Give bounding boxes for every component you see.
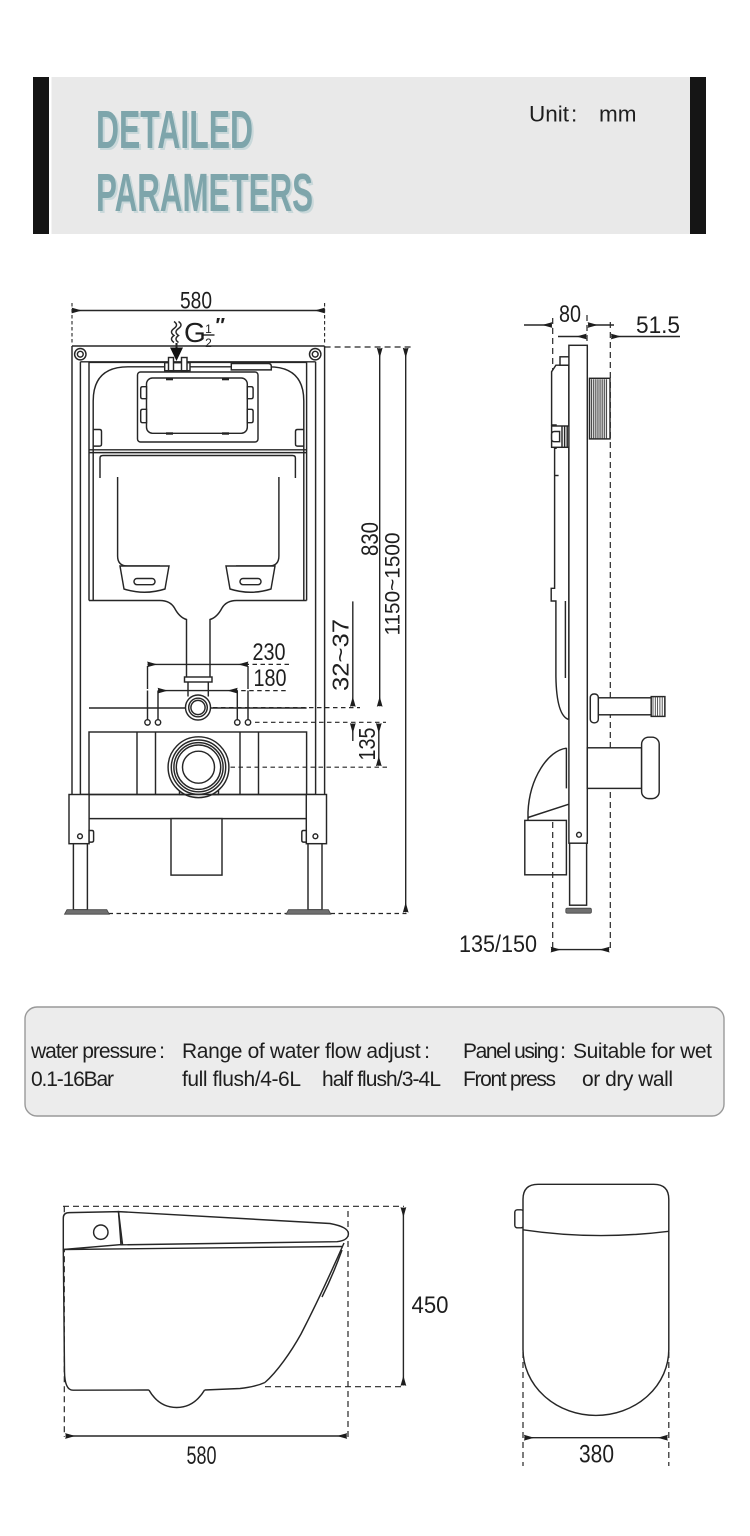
svg-text:32~37: 32~37 — [328, 619, 354, 691]
svg-text:230: 230 — [253, 639, 286, 666]
svg-text:580: 580 — [187, 1442, 217, 1470]
svg-text:450: 450 — [412, 1292, 449, 1319]
svg-text:830: 830 — [357, 522, 384, 556]
svg-text:135: 135 — [354, 728, 380, 761]
svg-text:Range of water flow adjust :: Range of water flow adjust : — [182, 1040, 430, 1063]
svg-text:or dry wall: or dry wall — [582, 1068, 673, 1091]
svg-text:135/150: 135/150 — [459, 931, 537, 958]
svg-text:Panel using :: Panel using : — [463, 1040, 566, 1063]
svg-text:1150~1500: 1150~1500 — [382, 533, 405, 636]
svg-text:51.5: 51.5 — [636, 312, 680, 339]
svg-text:PARAMETERS: PARAMETERS — [96, 163, 313, 223]
svg-text:0.1-16Bar: 0.1-16Bar — [31, 1068, 114, 1091]
svg-text:full flush/4-6L: full flush/4-6L — [182, 1068, 301, 1091]
svg-text:DETAILED: DETAILED — [96, 100, 253, 160]
svg-text:180: 180 — [254, 665, 287, 692]
svg-text:2: 2 — [205, 336, 212, 350]
svg-text:half flush/3-4L: half flush/3-4L — [322, 1068, 441, 1091]
svg-text:″: ″ — [216, 315, 226, 337]
svg-text:Front press: Front press — [463, 1068, 556, 1091]
svg-text:G: G — [184, 317, 206, 348]
svg-text:Suitable for wet: Suitable for wet — [573, 1040, 712, 1063]
svg-text:1: 1 — [205, 322, 212, 336]
svg-text:80: 80 — [559, 301, 581, 328]
svg-text:water pressure :: water pressure : — [30, 1040, 165, 1063]
svg-text:380: 380 — [579, 1441, 614, 1469]
